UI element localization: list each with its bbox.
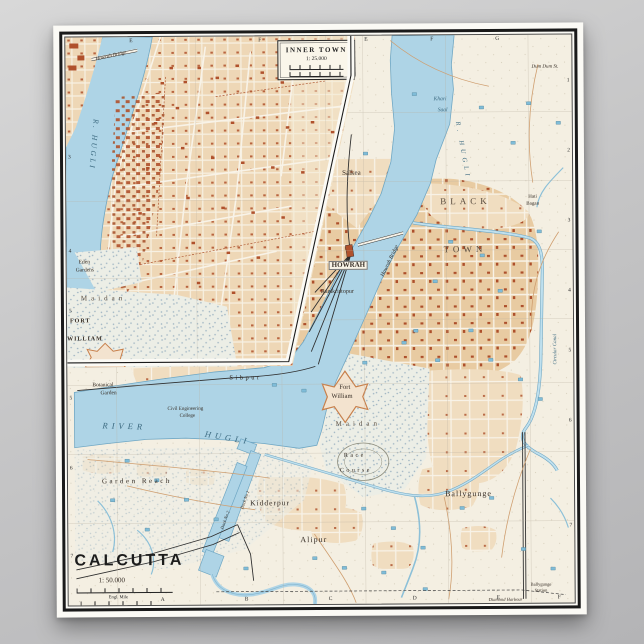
poster: R. HUGLI Howrah Bridge Eden Gardens Maid… bbox=[53, 22, 587, 617]
label-alipur: Alipur bbox=[300, 536, 327, 544]
label-black: BLACK bbox=[440, 197, 491, 206]
label-kidderpur: Kidderpur bbox=[250, 499, 290, 507]
label-dum-dum: Dum Dum St. bbox=[531, 65, 558, 70]
grid-letter: E bbox=[364, 37, 367, 43]
grid-letter: D bbox=[413, 595, 417, 601]
grid-number: 5 bbox=[568, 347, 571, 353]
label-ballygunge: Ballygunge bbox=[445, 490, 492, 498]
label-botanical-2: Garden bbox=[100, 391, 116, 397]
label-khari-2: Saal bbox=[438, 108, 448, 114]
grid-letter: E bbox=[129, 38, 132, 44]
grid-number: 5 bbox=[69, 309, 72, 315]
label-howrah: HOWRAH bbox=[329, 261, 369, 270]
grid-number: 4 bbox=[568, 287, 571, 293]
label-eden-2: Gardens bbox=[76, 268, 94, 274]
label-town: TOWN bbox=[444, 245, 487, 254]
inset-scale-bar bbox=[289, 72, 343, 77]
inset-title: INNER TOWN bbox=[278, 46, 354, 54]
label-ballygunge-stn-1: Ballygunge bbox=[531, 583, 552, 588]
label-race-2: Course bbox=[340, 468, 372, 474]
map-title: CALCUTTA bbox=[74, 553, 184, 570]
label-civil-eng-2: College bbox=[180, 414, 196, 419]
grid-letter: C bbox=[329, 596, 333, 602]
label-botanical-1: Botanical bbox=[92, 383, 113, 389]
label-race-1: Race bbox=[344, 453, 366, 459]
label-salkea: Salkea bbox=[342, 170, 361, 177]
grid-number: 6 bbox=[569, 417, 572, 423]
grid-number: 3 bbox=[68, 155, 71, 161]
label-hati-1: Hati bbox=[528, 195, 537, 200]
label-fort-main-1: Fort bbox=[339, 385, 350, 392]
grid-letter: F bbox=[430, 36, 433, 42]
map: R. HUGLI Howrah Bridge Eden Gardens Maid… bbox=[64, 33, 575, 606]
grid-letter: F bbox=[258, 37, 261, 43]
grid-letter: A bbox=[161, 597, 165, 603]
grid-letter: G bbox=[495, 36, 499, 42]
inset-title-box: INNER TOWN 1: 25.000 bbox=[277, 40, 355, 80]
grid-number: 5 bbox=[69, 396, 72, 402]
background: R. HUGLI Howrah Bridge Eden Gardens Maid… bbox=[0, 0, 644, 644]
label-maidan-main: Maidan bbox=[336, 421, 381, 428]
grid-number: 1 bbox=[567, 77, 570, 83]
label-fort-main-2: William bbox=[331, 394, 352, 401]
grid-number: 7 bbox=[70, 554, 73, 560]
scale-bar-miles-label: Engl. Mile bbox=[109, 594, 128, 599]
label-ramkristopur: Ramkristopur bbox=[321, 289, 354, 295]
grid-number: 4 bbox=[69, 249, 72, 255]
grid-number: 3 bbox=[568, 217, 571, 223]
grid-letter: F bbox=[558, 595, 561, 601]
inset-scale-bar bbox=[289, 65, 343, 70]
label-khari-1: Khari bbox=[434, 97, 447, 103]
label-inset-fort-1: FORT bbox=[70, 318, 91, 324]
label-civil-eng-1: Civil Engineering bbox=[168, 407, 204, 412]
label-river: RIVER bbox=[102, 421, 146, 431]
label-garden-reach: Garden Reach bbox=[102, 478, 172, 485]
label-circular-canal: Circular Canal bbox=[553, 334, 558, 365]
label-diamond-harbour: Diamond Harbour bbox=[489, 597, 523, 602]
grid-letter: E bbox=[497, 595, 500, 601]
scale-bar-miles bbox=[77, 588, 173, 594]
grid-letter: B bbox=[245, 596, 249, 602]
label-ballygunge-stn-2: Station bbox=[535, 589, 548, 594]
map-frame: R. HUGLI Howrah Bridge Eden Gardens Maid… bbox=[59, 28, 581, 611]
label-sibpur: Sibpur bbox=[229, 375, 261, 382]
label-inset-maidan: Maidan bbox=[81, 295, 126, 302]
grid-number: 7 bbox=[569, 522, 572, 528]
label-eden-1: Eden bbox=[79, 260, 90, 266]
map-scale: 1: 50.000 bbox=[99, 577, 125, 584]
grid-number: 6 bbox=[70, 466, 73, 472]
label-hati-2: Bagan bbox=[526, 202, 539, 207]
label-inset-fort-2: WILLIAM bbox=[67, 336, 103, 342]
scale-bar-km bbox=[81, 601, 157, 606]
grid-number: 2 bbox=[567, 147, 570, 153]
inset-scale: 1: 25.000 bbox=[278, 56, 354, 62]
